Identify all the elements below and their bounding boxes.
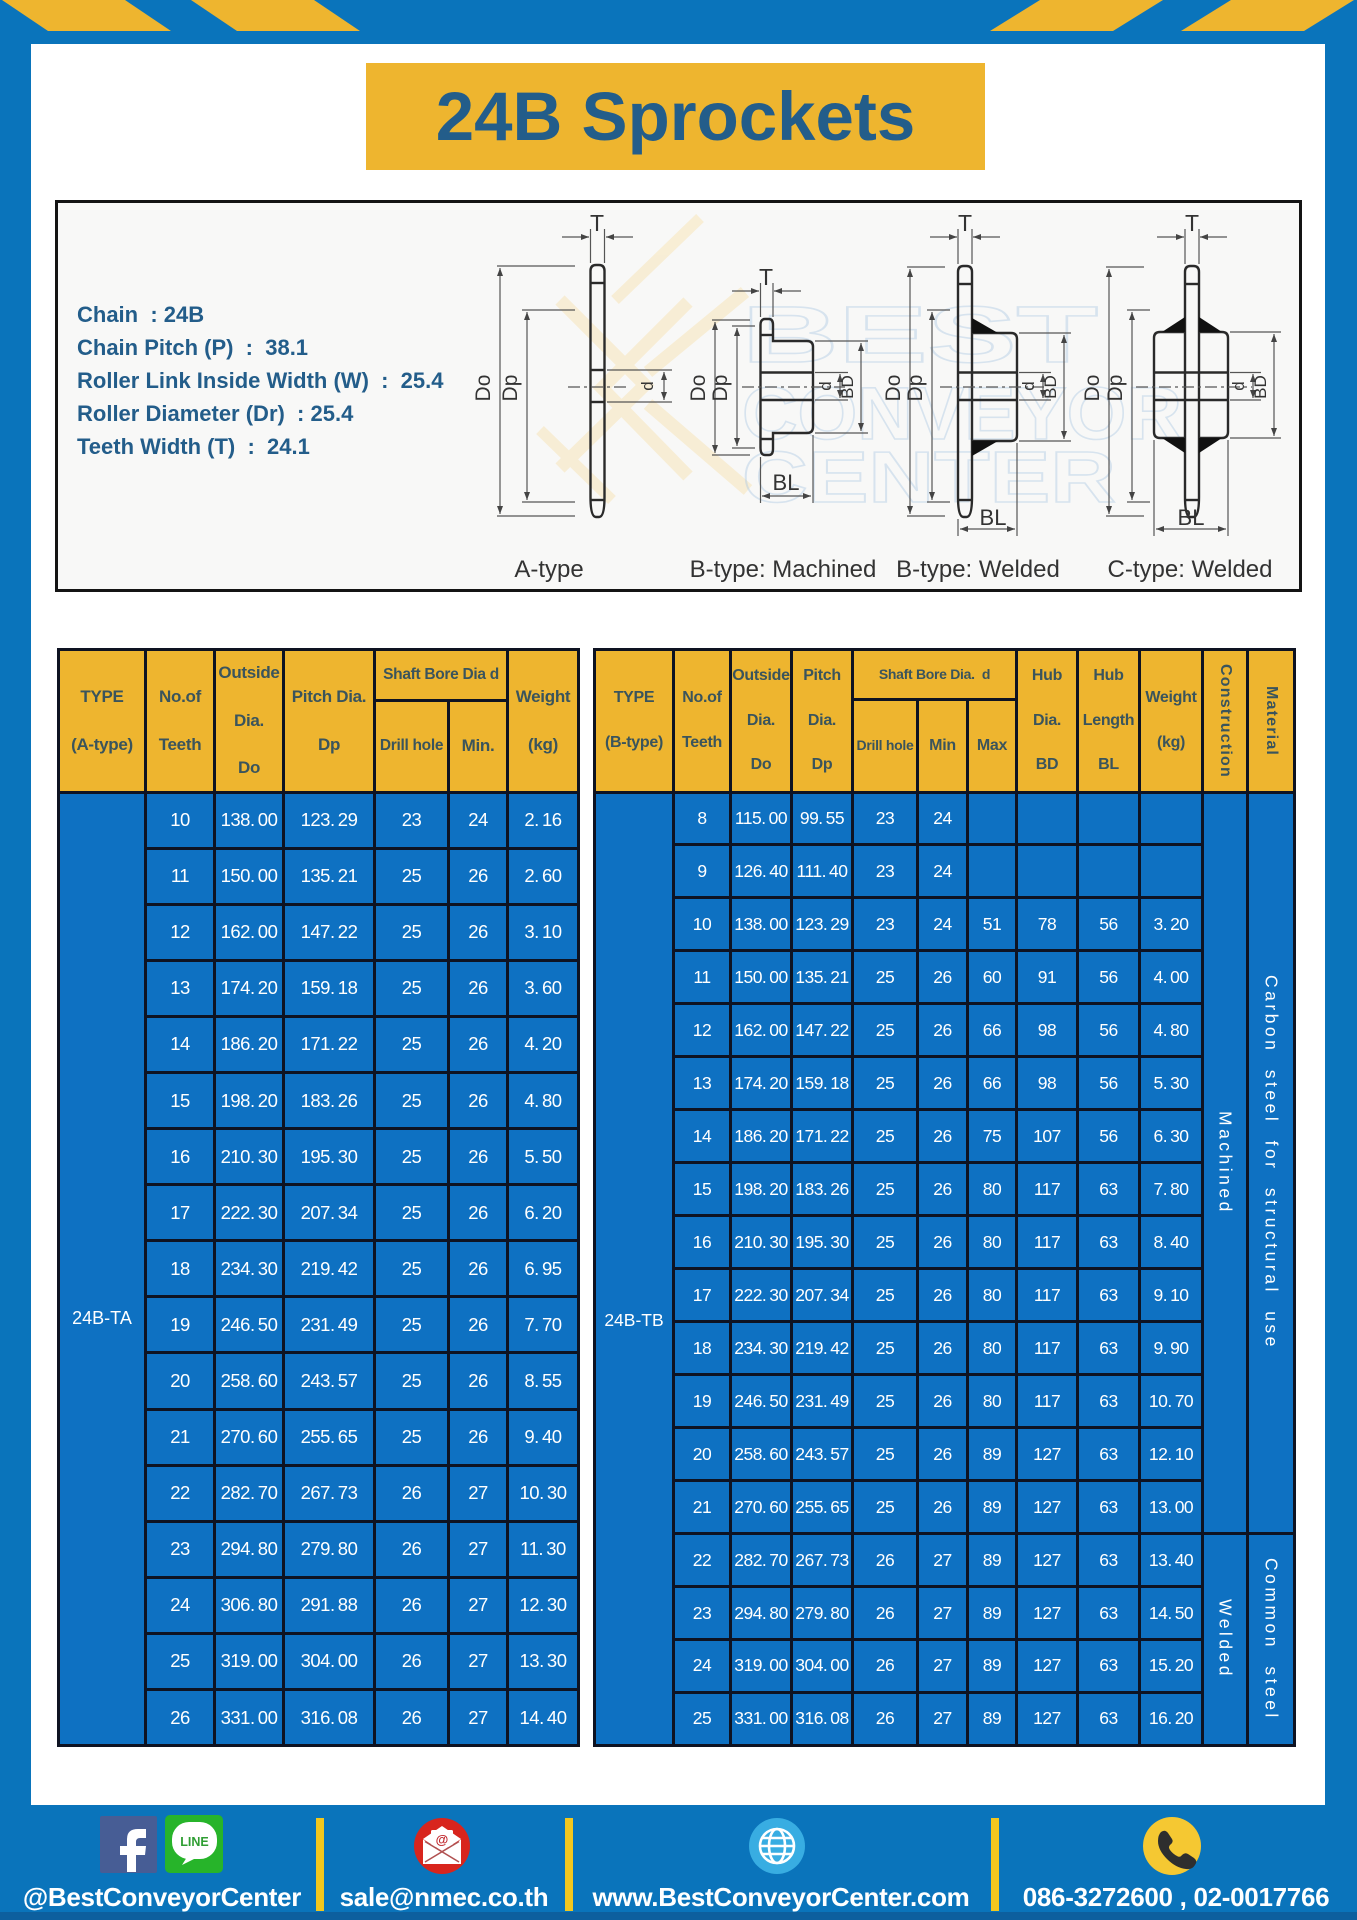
- svg-text:Teeth Width (T) : 24.1: Teeth Width (T) : 24.1: [77, 434, 310, 459]
- svg-text:B-type: Welded: B-type: Welded: [896, 556, 1060, 583]
- svg-text:BL: BL: [1178, 505, 1205, 530]
- svg-text:Chain : 24B: Chain : 24B: [77, 302, 204, 327]
- svg-text:Chain Pitch (P) : 38.1: Chain Pitch (P) : 38.1: [77, 335, 308, 360]
- svg-text:d: d: [1229, 381, 1248, 390]
- svg-text:T: T: [590, 210, 604, 236]
- svg-text:Dp: Dp: [709, 375, 732, 402]
- svg-text:d: d: [638, 381, 657, 390]
- svg-text:d: d: [1019, 381, 1038, 390]
- svg-text:www.BestConveyorCenter.com: www.BestConveyorCenter.com: [591, 1882, 969, 1912]
- svg-text:BL: BL: [980, 505, 1007, 530]
- svg-text:Roller Link Inside Width (W): Roller Link Inside Width (W) : 25.4: [77, 368, 444, 393]
- svg-text:T: T: [759, 264, 773, 290]
- svg-text:d: d: [816, 381, 835, 390]
- svg-text:Do: Do: [472, 375, 495, 402]
- svg-text:Do: Do: [687, 375, 710, 402]
- svg-text:C-type: Welded: C-type: Welded: [1108, 556, 1273, 583]
- svg-text:@BestConveyorCenter: @BestConveyorCenter: [23, 1882, 301, 1912]
- svg-text:Do: Do: [882, 375, 905, 402]
- svg-text:BD: BD: [1251, 375, 1270, 399]
- svg-text:T: T: [958, 210, 972, 236]
- svg-text:Dp: Dp: [499, 375, 522, 402]
- svg-text:Roller Diameter (Dr) : 25.4: Roller Diameter (Dr) : 25.4: [77, 401, 354, 426]
- svg-text:A-type: A-type: [514, 556, 583, 583]
- svg-text:Dp: Dp: [1104, 375, 1127, 402]
- svg-text:@: @: [436, 1832, 449, 1847]
- svg-text:sale@nmec.co.th: sale@nmec.co.th: [340, 1882, 549, 1912]
- svg-text:BD: BD: [1041, 375, 1060, 399]
- svg-text:Do: Do: [1081, 375, 1104, 402]
- svg-text:Dp: Dp: [904, 375, 927, 402]
- svg-text:BD: BD: [838, 375, 857, 399]
- svg-text:T: T: [1185, 210, 1199, 236]
- svg-text:BEST: BEST: [742, 290, 1098, 379]
- svg-text:B-type: Machined: B-type: Machined: [690, 556, 877, 583]
- svg-text:LINE: LINE: [180, 1835, 208, 1849]
- svg-text:086-3272600 , 02-0017766: 086-3272600 , 02-0017766: [1023, 1882, 1330, 1912]
- svg-text:BL: BL: [773, 470, 800, 495]
